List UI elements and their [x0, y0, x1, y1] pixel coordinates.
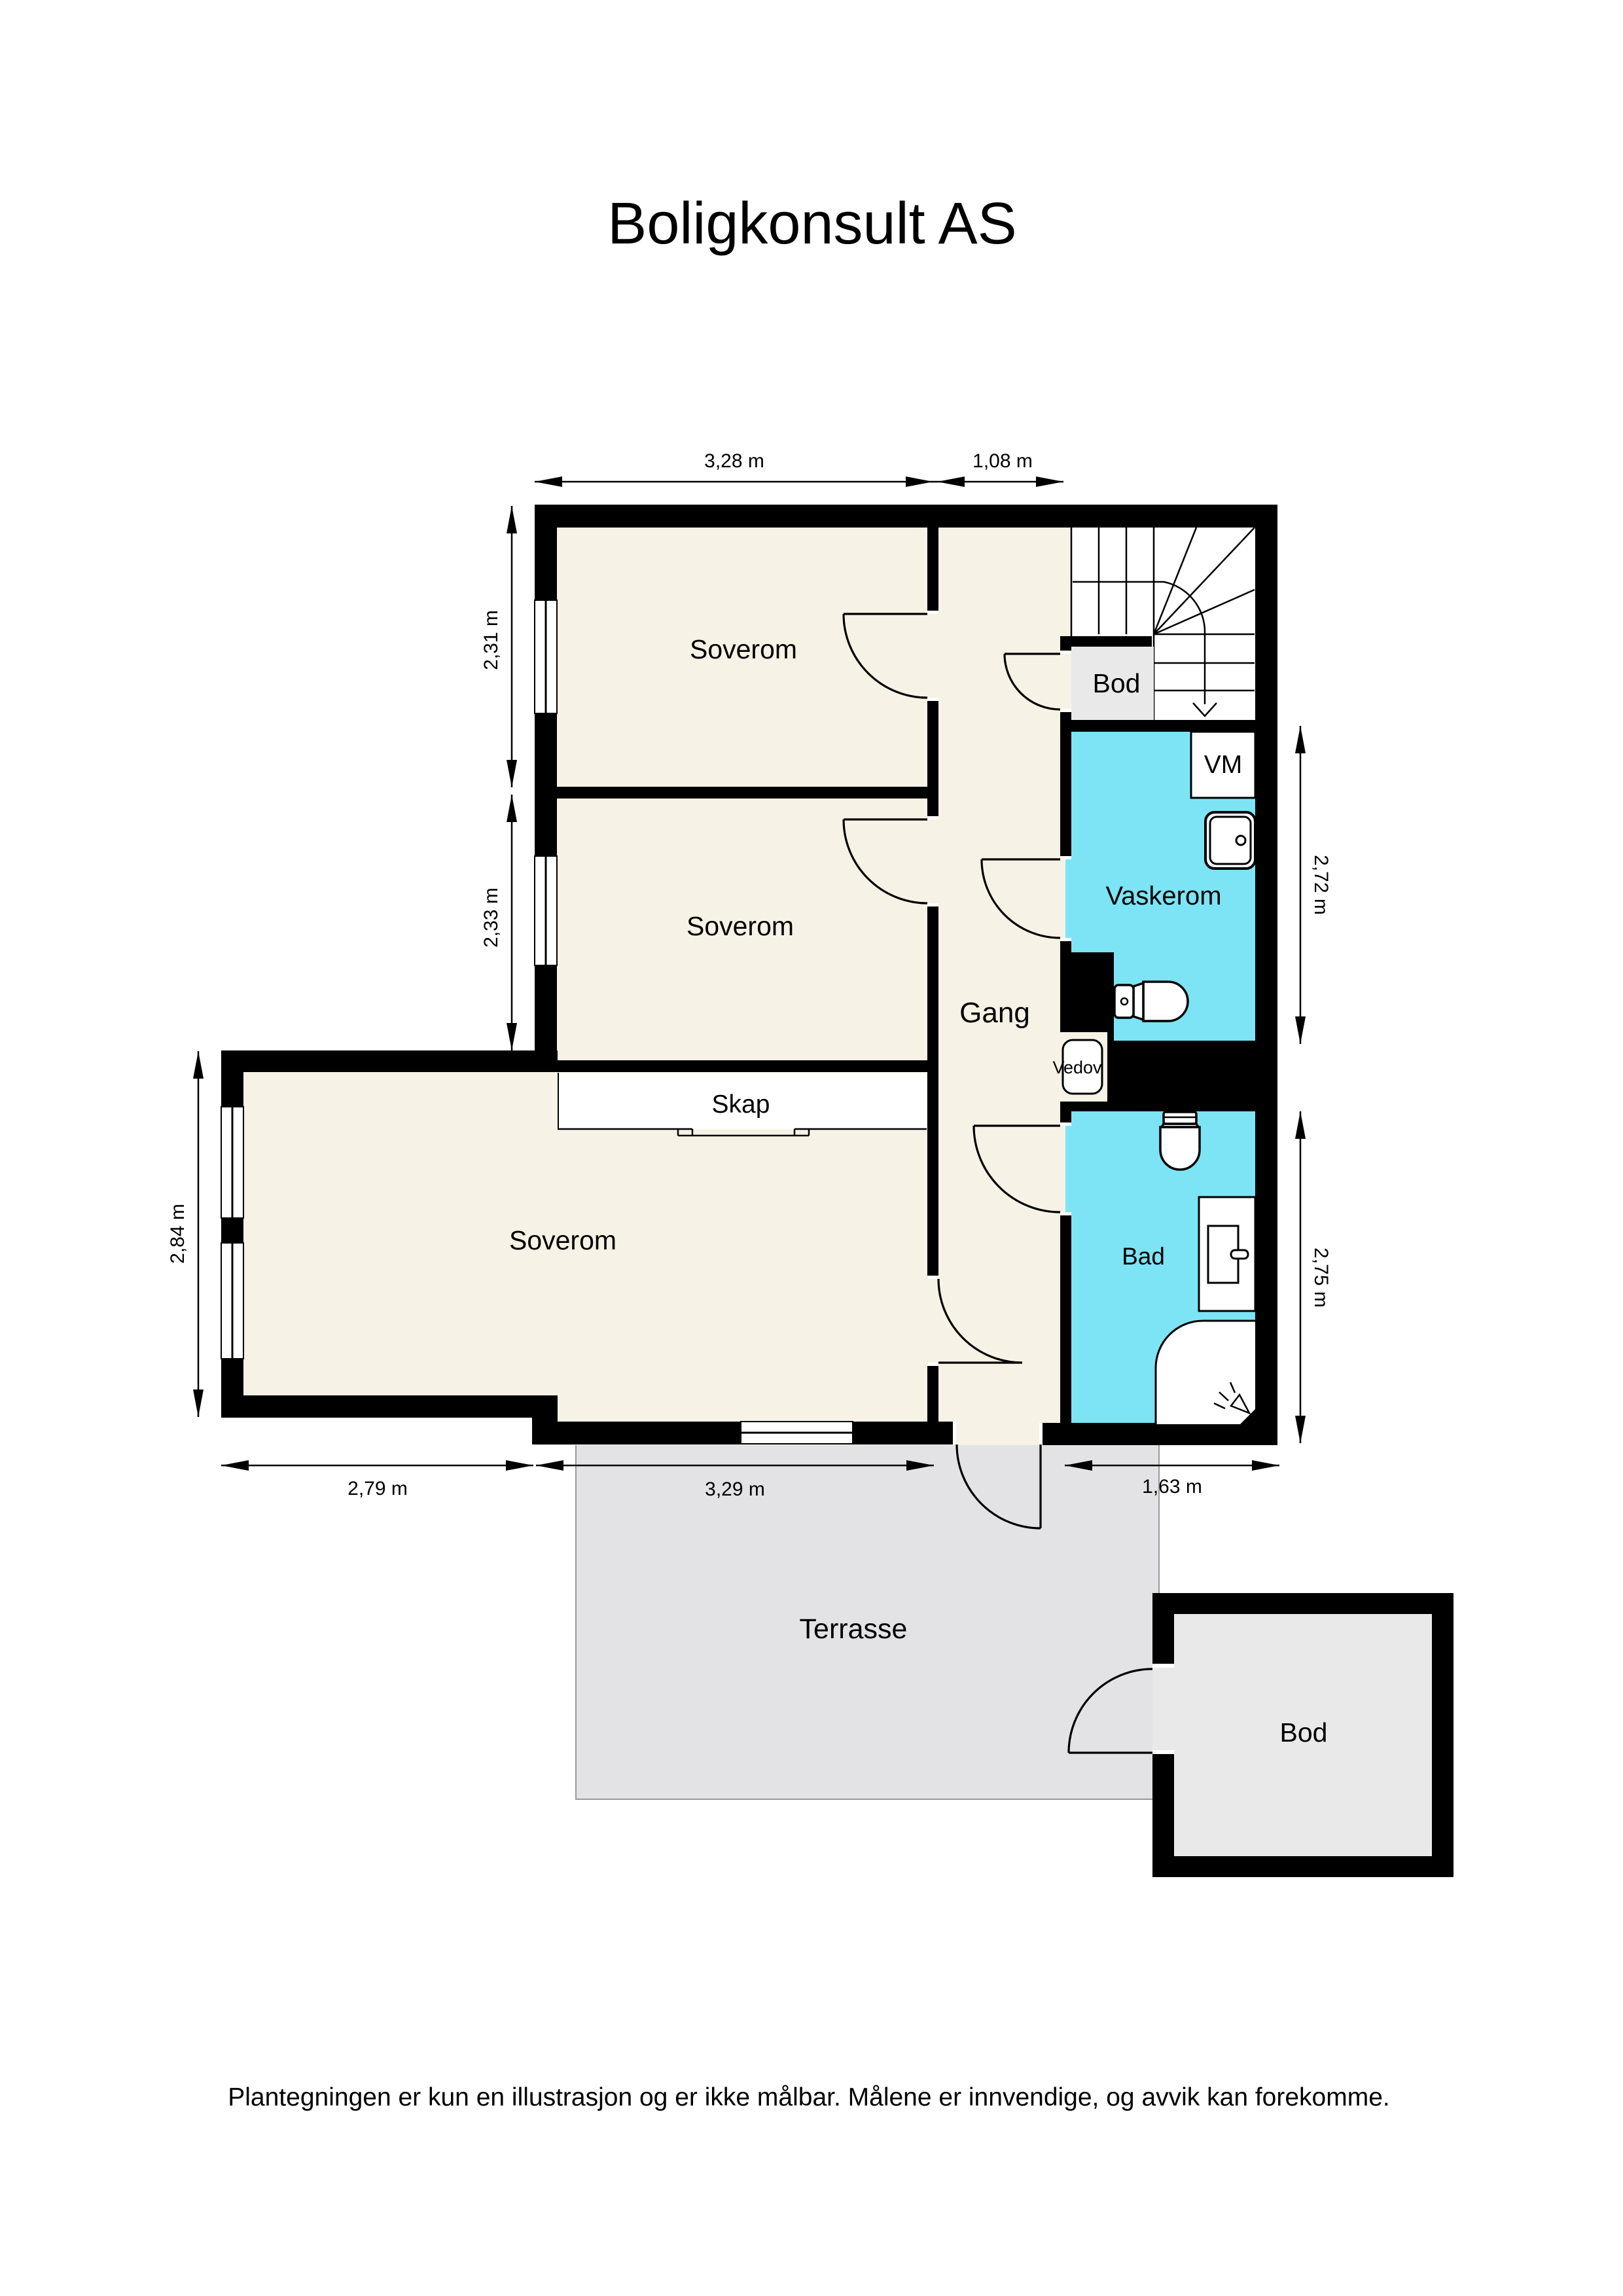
svg-text:Terrasse: Terrasse [800, 1613, 908, 1645]
svg-text:2,75 m: 2,75 m [1310, 1247, 1332, 1308]
svg-text:3,29 m: 3,29 m [705, 1479, 765, 1500]
svg-text:2,79 m: 2,79 m [348, 1478, 408, 1499]
svg-text:Plantegningen er kun en illust: Plantegningen er kun en illustrasjon og … [228, 2083, 1390, 2111]
svg-text:1,08 m: 1,08 m [972, 450, 1033, 472]
svg-text:Bad: Bad [1122, 1243, 1165, 1270]
svg-text:Bod: Bod [1280, 1717, 1328, 1748]
svg-text:Soverom: Soverom [509, 1225, 616, 1255]
svg-text:2,72 m: 2,72 m [1310, 855, 1332, 915]
svg-text:Vaskerom: Vaskerom [1105, 882, 1221, 910]
svg-text:Gang: Gang [959, 997, 1030, 1029]
svg-text:VM: VM [1204, 751, 1243, 779]
svg-text:Boligkonsult AS: Boligkonsult AS [607, 191, 1016, 257]
svg-text:2,31 m: 2,31 m [480, 610, 502, 670]
svg-text:1,63 m: 1,63 m [1142, 1476, 1202, 1498]
svg-text:Soverom: Soverom [690, 634, 797, 664]
svg-text:Skap: Skap [712, 1090, 770, 1119]
svg-text:2,33 m: 2,33 m [480, 888, 502, 948]
svg-text:Bod: Bod [1093, 668, 1141, 698]
svg-text:Soverom: Soverom [687, 911, 794, 941]
svg-text:Vedov: Vedov [1052, 1058, 1102, 1077]
svg-text:2,84 m: 2,84 m [167, 1204, 188, 1264]
svg-text:3,28 m: 3,28 m [704, 450, 764, 472]
